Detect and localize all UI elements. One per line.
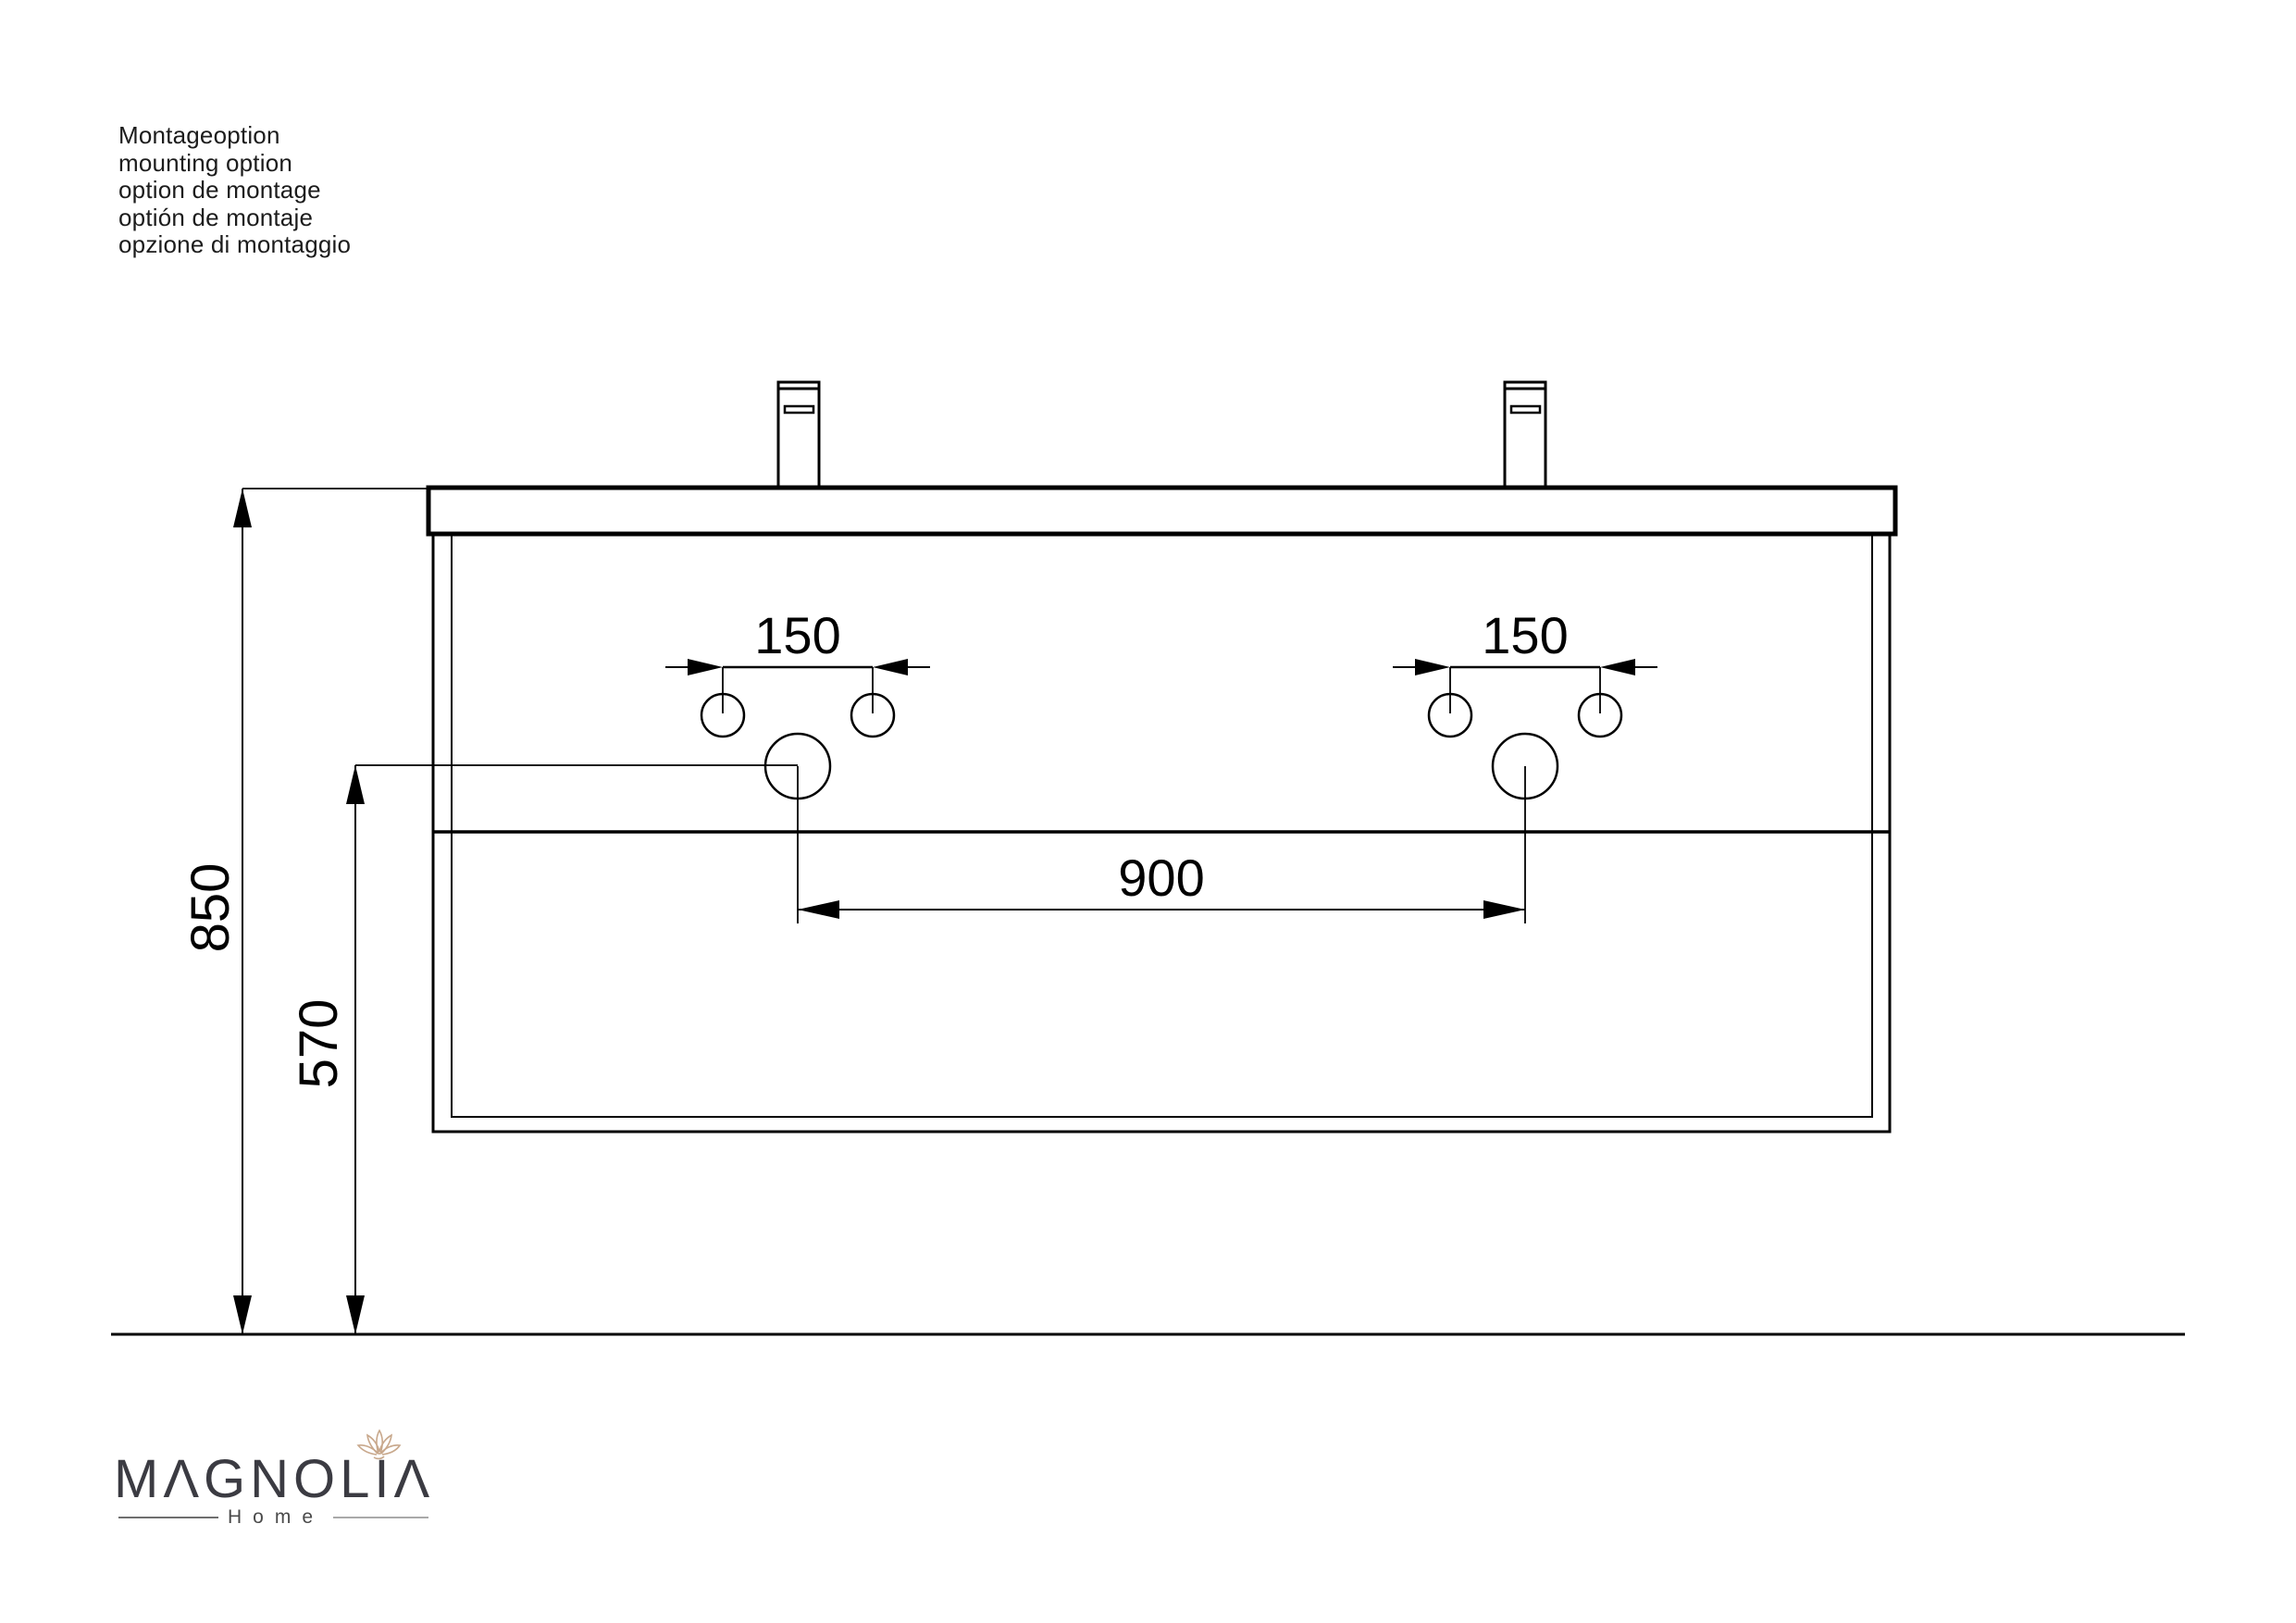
dimension-570: 570 bbox=[289, 765, 798, 1334]
washbasin-countertop bbox=[428, 488, 1895, 534]
cabinet-inner-edge bbox=[452, 534, 1872, 1117]
page: Montageoption mounting option option de … bbox=[0, 0, 2296, 1623]
dim-label-150-left: 150 bbox=[754, 606, 840, 664]
logo-rule-right bbox=[333, 1517, 428, 1518]
mounting-holes bbox=[701, 694, 1621, 799]
dim-label-570: 570 bbox=[289, 999, 349, 1089]
vanity-cabinet bbox=[433, 534, 1890, 1132]
dim-label-150-right: 150 bbox=[1482, 606, 1568, 664]
dim-label-900: 900 bbox=[1118, 849, 1204, 907]
dimension-150-left: 150 bbox=[665, 606, 930, 713]
logo-subtitle: Home bbox=[228, 1506, 324, 1529]
logo-rule-left bbox=[118, 1517, 218, 1518]
technical-drawing: 150 150 900 850 bbox=[0, 0, 2296, 1623]
magnolia-flower-icon bbox=[355, 1428, 402, 1462]
dimension-850: 850 bbox=[180, 489, 428, 1334]
faucet-left bbox=[778, 382, 819, 487]
logo-subtitle-row: Home bbox=[118, 1507, 428, 1528]
brand-logo: MΛGNOLIΛ Home bbox=[114, 1453, 433, 1506]
faucet-right bbox=[1505, 382, 1545, 487]
dim-label-850: 850 bbox=[180, 863, 241, 953]
dimension-900: 900 bbox=[798, 766, 1525, 923]
dimension-150-right: 150 bbox=[1393, 606, 1657, 713]
